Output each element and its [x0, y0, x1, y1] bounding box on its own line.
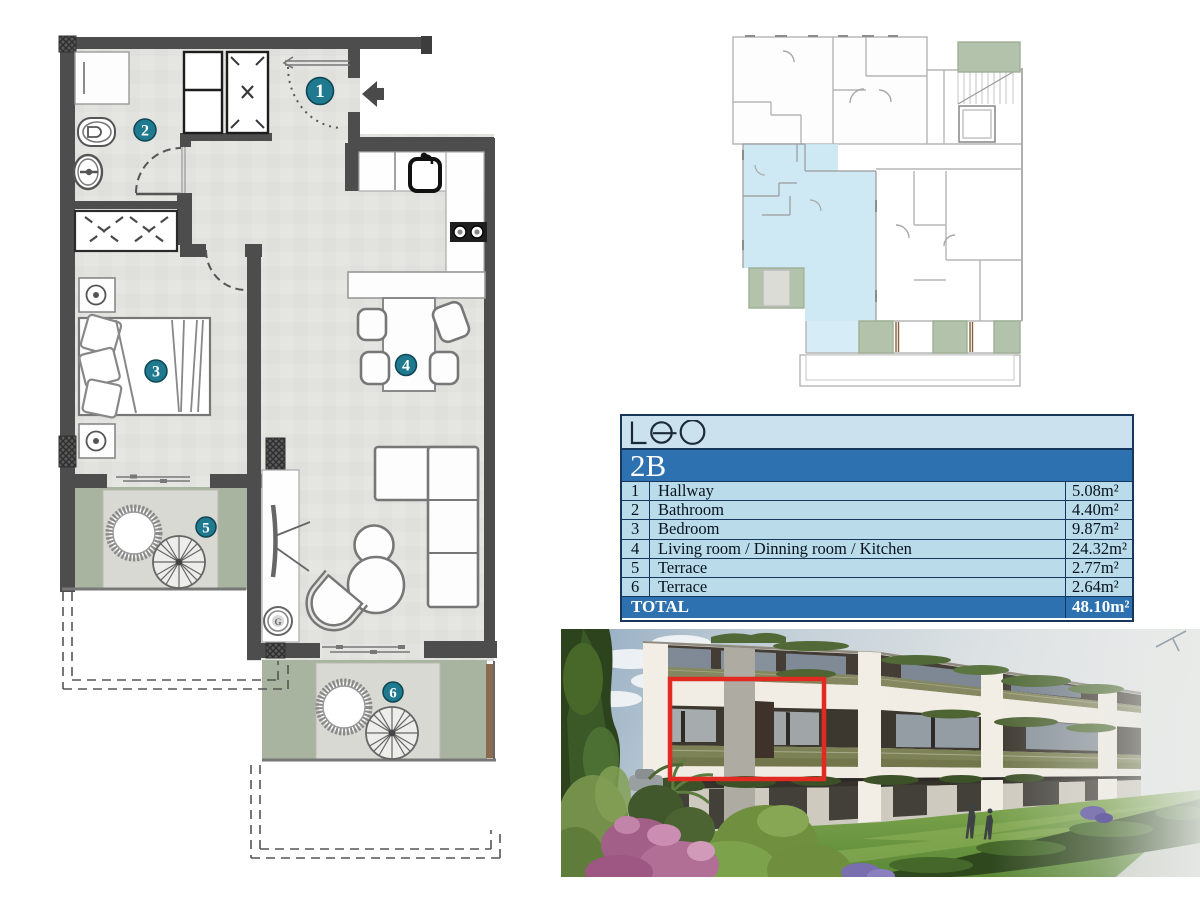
svg-text:6: 6 [389, 686, 397, 702]
svg-text:3: 3 [152, 364, 160, 381]
svg-text:G: G [274, 617, 281, 627]
svg-text:4: 4 [402, 358, 410, 375]
svg-text:5: 5 [202, 521, 210, 537]
svg-text:1: 1 [315, 81, 325, 102]
svg-text:2: 2 [141, 123, 149, 140]
